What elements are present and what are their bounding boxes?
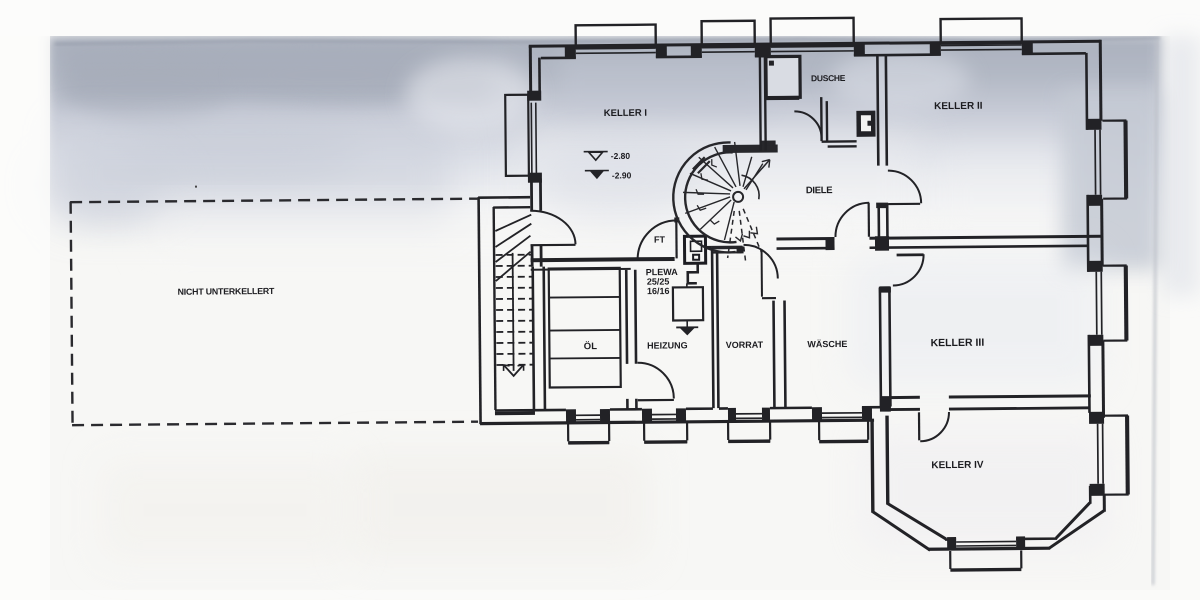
svg-text:WÄSCHE: WÄSCHE: [807, 339, 847, 349]
svg-text:ÖL: ÖL: [584, 341, 597, 352]
svg-text:16/16: 16/16: [647, 286, 670, 296]
svg-text:KELLER II: KELLER II: [934, 101, 983, 112]
svg-text:NICHT UNTERKELLERT: NICHT UNTERKELLERT: [178, 286, 275, 297]
svg-text:VORRAT: VORRAT: [726, 340, 764, 350]
svg-text:DIELE: DIELE: [806, 185, 833, 196]
svg-text:-2.80: -2.80: [611, 151, 631, 161]
svg-text:KELLER IV: KELLER IV: [931, 460, 984, 471]
svg-text:KELLER I: KELLER I: [604, 108, 647, 119]
svg-text:DUSCHE: DUSCHE: [811, 73, 846, 83]
svg-text:-2.90: -2.90: [612, 170, 632, 180]
svg-text:HEIZUNG: HEIZUNG: [647, 340, 688, 350]
svg-text:KELLER III: KELLER III: [930, 337, 984, 349]
svg-text:FT: FT: [654, 235, 666, 245]
